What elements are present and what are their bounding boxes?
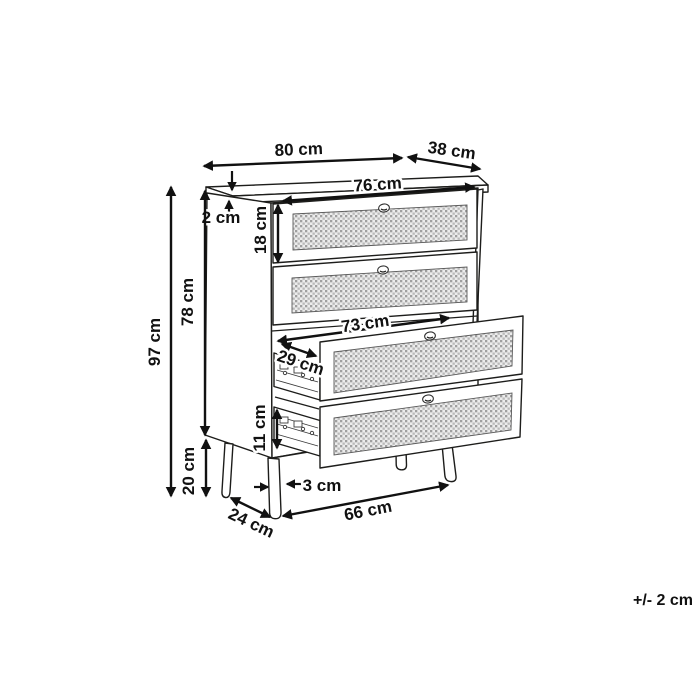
leg-front-right (442, 444, 456, 482)
dim-drawer-front-height-label: 18 cm (251, 206, 270, 254)
dim-top-inner-width-label: 76 cm (353, 173, 402, 195)
dim-overall-depth-label: 38 cm (427, 138, 477, 164)
dim-top-thickness-label: 2 cm (202, 208, 241, 227)
dim-overall-width-arrow (204, 158, 402, 166)
dim-drawer-box-height-label: 11 cm (250, 404, 269, 451)
dim-overall-width-label: 80 cm (274, 139, 323, 160)
dim-leg-width-spacing-label: 66 cm (342, 497, 393, 525)
leg-front-left (268, 458, 281, 519)
dim-leg-height-label: 20 cm (179, 447, 198, 495)
leg-back-left (222, 443, 233, 498)
dim-total-height-label: 97 cm (145, 318, 164, 366)
chest-diagram-svg: 80 cm 38 cm 76 cm 2 cm 18 cm 97 cm 78 cm… (0, 0, 700, 700)
dim-leg-diameter-label: 3 cm (303, 476, 342, 495)
dimension-diagram: 80 cm 38 cm 76 cm 2 cm 18 cm 97 cm 78 cm… (0, 0, 700, 700)
dim-body-height-label: 78 cm (178, 278, 197, 326)
tolerance-note: +/- 2 cm (633, 592, 693, 609)
